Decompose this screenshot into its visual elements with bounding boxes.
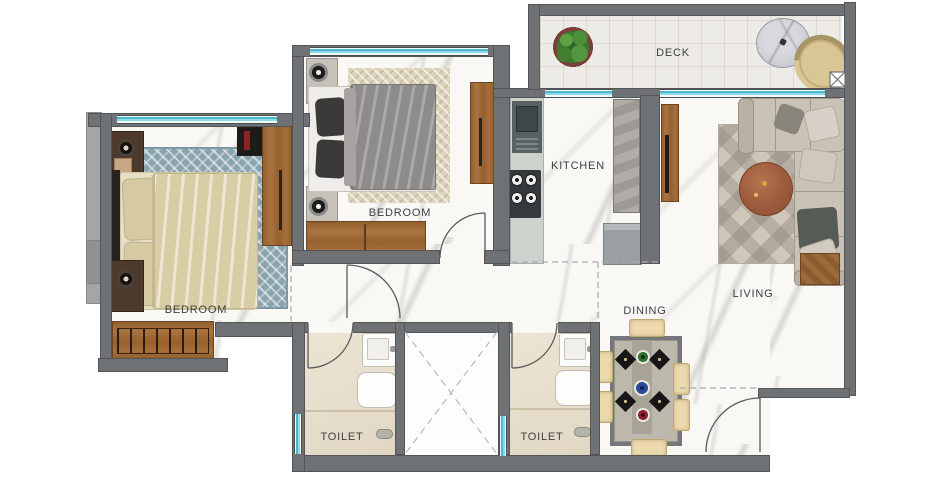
label-bedroom-left: BEDROOM (165, 304, 227, 316)
label-toilet-left: TOILET (320, 431, 363, 443)
zone-boundaries (291, 262, 757, 388)
floor-plan: BEDROOM BEDROOM KITCHEN DECK LIVING DINI… (0, 0, 940, 490)
door-arc-entrance (706, 398, 760, 452)
shaft-diagonal (405, 332, 497, 454)
door-swings (308, 213, 760, 452)
label-living: LIVING (733, 288, 774, 300)
label-deck: DECK (656, 47, 690, 59)
door-arc-toilet-left (308, 323, 353, 368)
door-arc-toilet-right (512, 323, 557, 368)
door-arc-corridor (347, 265, 400, 318)
label-kitchen: KITCHEN (551, 160, 605, 172)
label-dining: DINING (623, 305, 666, 317)
door-arc-bedroom-middle (440, 213, 485, 258)
deck-drain-marker (830, 72, 845, 87)
label-toilet-right: TOILET (520, 431, 563, 443)
label-bedroom-middle: BEDROOM (369, 207, 431, 219)
shaft-cross (405, 332, 497, 454)
plan-line-overlay (0, 0, 940, 490)
